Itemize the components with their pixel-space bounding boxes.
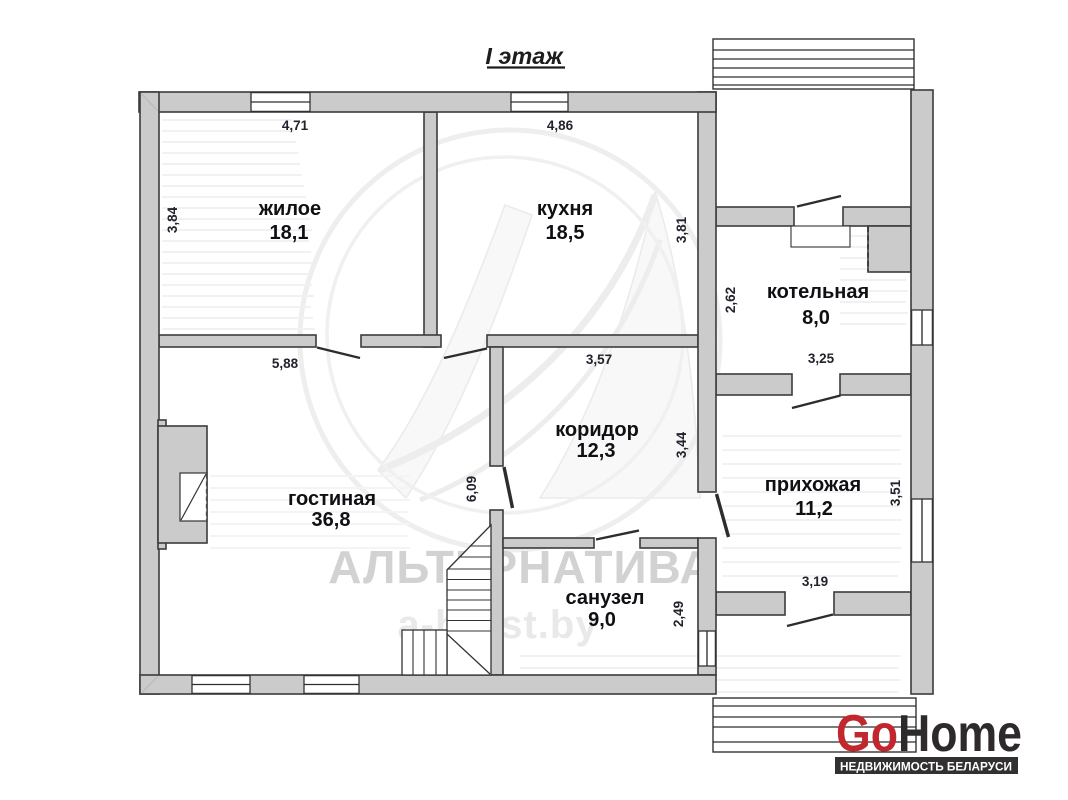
svg-text:36,8: 36,8: [312, 509, 351, 531]
svg-text:жилое: жилое: [258, 198, 321, 220]
svg-text:4,71: 4,71: [282, 118, 309, 133]
svg-text:2,62: 2,62: [723, 287, 738, 313]
svg-text:3,84: 3,84: [165, 206, 180, 233]
svg-text:3,81: 3,81: [674, 216, 689, 243]
svg-text:3,51: 3,51: [888, 479, 903, 506]
svg-text:11,2: 11,2: [795, 498, 833, 520]
svg-text:2,49: 2,49: [671, 601, 686, 627]
svg-text:НЕДВИЖИМОСТЬ БЕЛАРУСИ: НЕДВИЖИМОСТЬ БЕЛАРУСИ: [840, 762, 1012, 774]
svg-text:6,09: 6,09: [464, 476, 479, 502]
svg-text:18,5: 18,5: [546, 222, 585, 244]
svg-text:4,86: 4,86: [547, 118, 574, 133]
svg-text:прихожая: прихожая: [765, 474, 861, 496]
svg-text:кухня: кухня: [537, 198, 593, 220]
svg-text:3,19: 3,19: [802, 574, 828, 589]
svg-text:3,57: 3,57: [586, 352, 612, 367]
svg-text:3,25: 3,25: [808, 351, 835, 366]
svg-text:12,3: 12,3: [577, 440, 616, 462]
svg-text:санузел: санузел: [566, 587, 645, 609]
svg-text:8,0: 8,0: [802, 307, 830, 329]
svg-text:5,88: 5,88: [272, 356, 299, 371]
svg-text:гостиная: гостиная: [288, 488, 376, 510]
svg-text:3,44: 3,44: [674, 431, 689, 458]
svg-text:котельная: котельная: [767, 281, 869, 303]
svg-text:18,1: 18,1: [270, 222, 309, 244]
svg-text:9,0: 9,0: [588, 609, 616, 631]
svg-text:коридор: коридор: [555, 419, 639, 441]
svg-text:GoHome: GoHome: [836, 705, 1022, 763]
svg-text:I этаж: I этаж: [485, 43, 564, 69]
